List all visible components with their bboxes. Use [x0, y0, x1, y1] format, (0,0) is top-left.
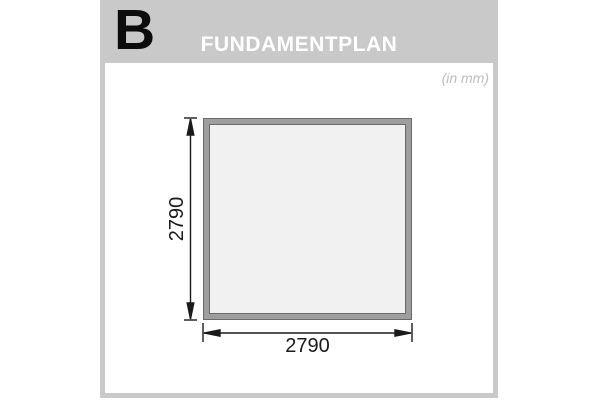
height-dimension-label: 2790 — [166, 189, 188, 249]
header-band: B FUNDAMENTPLAN — [100, 0, 498, 63]
width-dimension-label: 2790 — [203, 335, 412, 357]
height-dim-arrow-down-icon — [187, 303, 194, 319]
plan-card: B FUNDAMENTPLAN (in mm) — [100, 0, 498, 398]
drawing-panel: (in mm) — [105, 63, 493, 393]
page-title: FUNDAMENTPLAN — [100, 34, 498, 55]
page: B FUNDAMENTPLAN (in mm) — [0, 0, 600, 400]
height-dim-arrow-up-icon — [187, 119, 194, 135]
